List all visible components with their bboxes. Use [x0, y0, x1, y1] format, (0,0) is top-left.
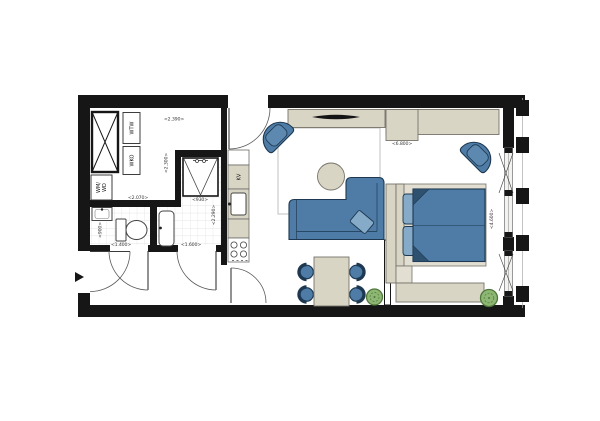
wtw-label: WTW [129, 121, 135, 134]
burner-icon [231, 242, 237, 248]
utility-room: WTW WKO WM/WD [91, 112, 140, 200]
facade-pier-4 [516, 235, 529, 251]
wall-right-pier-bottom [503, 296, 514, 317]
toilet [116, 219, 147, 241]
dim-shower-width: <930> [192, 197, 208, 203]
facade-pier-2 [516, 137, 529, 153]
stove [228, 238, 249, 262]
frame-junction [505, 190, 513, 196]
plant-bedroom [481, 290, 498, 307]
bed [386, 184, 486, 283]
window-upper [499, 148, 513, 237]
dim-utility-width: <2.390> [164, 117, 184, 123]
wardrobe-deep-section [386, 110, 418, 141]
washer-dryer-label: WM/WD [96, 182, 108, 193]
toilet-door-arc [109, 251, 148, 290]
dim-living-bedroom-width: <6.800> [392, 141, 412, 147]
wall-shower-left [175, 150, 181, 205]
nightstand [396, 266, 412, 283]
plant-center [374, 296, 376, 298]
faucet-icon [159, 227, 162, 230]
wall-right-pier-top [503, 95, 514, 148]
fridge-label: KV [236, 173, 242, 180]
wall-left-upper [78, 95, 90, 251]
worktop [228, 219, 249, 238]
hand-basin [92, 208, 112, 221]
wall-left-lower [78, 293, 90, 317]
kitchen-cabinet [228, 150, 249, 165]
toilet-tank [116, 219, 126, 241]
windows [499, 148, 513, 296]
plant-living [367, 289, 383, 305]
wko-label: WKO [129, 154, 135, 166]
burner-icon [231, 251, 237, 257]
entrance-door-arc [90, 252, 130, 292]
wall-hall-top-3 [216, 245, 227, 252]
dining-chair [297, 263, 313, 281]
armchair-bedroom [459, 135, 498, 174]
frame-junction [505, 148, 513, 153]
floor-plan: WTW WKO WM/WD [0, 0, 600, 421]
installation-shaft [92, 112, 118, 172]
entrance-arrow-icon [75, 272, 84, 282]
bed-side-ledge [386, 184, 396, 283]
window-lower [499, 251, 513, 296]
coffee-table [318, 163, 345, 190]
bedroom [386, 110, 499, 307]
frame-junction [505, 291, 513, 296]
frame-junction [505, 251, 513, 256]
facade-pier-1 [516, 100, 529, 116]
faucet-icon [228, 203, 231, 206]
dim-utility-bottom-width: <2.070> [128, 195, 148, 201]
wall-bottom [78, 305, 525, 317]
living-door-arc [231, 268, 266, 303]
stove-body [228, 238, 249, 262]
living-room [256, 110, 385, 307]
toilet-room-door [109, 251, 148, 290]
dim-toilet-room-height: <900> [98, 222, 104, 238]
kitchen-sink [231, 193, 246, 215]
faucet-icon [101, 208, 103, 210]
dining-chair [350, 263, 366, 281]
dining-chair [350, 285, 366, 303]
entrance-door [75, 252, 130, 292]
burner-icon [240, 251, 246, 257]
washbasin [159, 211, 174, 246]
floor-plan-canvas: WTW WKO WM/WD [0, 0, 600, 421]
toilet-bowl [126, 221, 147, 240]
dim-bedroom-depth: <4.600> [489, 209, 495, 229]
kitchen: KV [228, 150, 249, 262]
shower [183, 158, 218, 196]
frame-junction [505, 232, 513, 237]
hand-basin-bowl [95, 210, 109, 219]
wall-top-right-segment [268, 95, 525, 108]
facade-pier-5 [516, 286, 529, 302]
shower-control-icon [203, 160, 206, 163]
facade-pier-3 [516, 188, 529, 204]
wall-right-pier-middle [503, 237, 514, 251]
dim-shower-room-height: <2.290> [211, 205, 217, 225]
shower-tray [183, 158, 218, 196]
living-room-door [231, 268, 266, 303]
shower-room-door [177, 251, 216, 290]
shower-control-icon [196, 160, 199, 163]
dim-shower-room-width: <1.600> [181, 242, 201, 248]
burner-icon [240, 242, 246, 248]
facade-elements [516, 98, 529, 308]
dining-set [297, 257, 365, 306]
wall-living-west [221, 108, 227, 265]
shower-door-arc [177, 251, 216, 290]
wall-top-left-segment [78, 95, 228, 108]
plant-center [488, 297, 490, 299]
dining-table [314, 257, 349, 306]
wall-shower-top [175, 150, 227, 157]
bedroom-bench [396, 283, 484, 302]
dim-utility-height: <2.300> [164, 153, 170, 173]
dim-toilet-room-width: <1.400> [111, 242, 131, 248]
dining-chair [297, 285, 313, 303]
